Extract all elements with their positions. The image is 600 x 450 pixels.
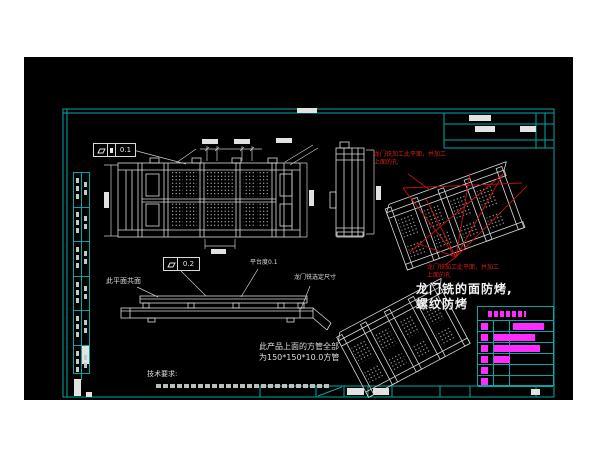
strip-cell — [74, 208, 82, 242]
magenta-marker — [481, 356, 488, 363]
process-table-row — [478, 321, 553, 332]
process-table-row — [478, 343, 553, 354]
vertical-text-blob — [76, 247, 79, 271]
strip-cell — [82, 242, 89, 276]
process-table-rows — [478, 321, 553, 387]
vertical-text-blob — [76, 316, 79, 340]
strip-cell — [82, 346, 89, 380]
strip-cell — [74, 173, 82, 207]
flatness-symbol-icon — [94, 144, 108, 156]
vertical-text-blob — [76, 178, 79, 202]
magenta-bar — [494, 356, 510, 363]
gantry-mill-dimension-note: 龙门铣选定尺寸 — [294, 274, 336, 281]
magenta-marker — [481, 345, 488, 352]
left-strip-row — [74, 310, 89, 345]
magenta-bar — [494, 345, 540, 352]
strip-cell — [82, 277, 89, 311]
magenta-marker — [481, 323, 488, 330]
left-strip-row — [74, 276, 89, 311]
tube-note-line: 此产品上面的方管全部 — [259, 342, 339, 353]
flatness-frame-top: 0.1 — [93, 143, 136, 157]
process-table-header-text-blob — [488, 311, 526, 317]
vertical-text-blob — [76, 212, 79, 236]
red-note-line: 上面的孔 — [427, 272, 499, 280]
tube-note-line: 为150*150*10.0方管 — [259, 353, 339, 364]
square-tube-note: 此产品上面的方管全部 为150*150*10.0方管 — [259, 342, 339, 363]
red-note-line: 龙门铣加工此平面，并加工 — [374, 151, 446, 159]
vertical-text-blob — [84, 355, 87, 371]
vertical-text-blob — [76, 351, 79, 375]
tech-requirements-body-blob — [156, 384, 331, 388]
left-strip-row — [74, 207, 89, 242]
magenta-marker — [481, 334, 488, 341]
magenta-marker — [481, 378, 488, 385]
magenta-marker — [481, 367, 488, 374]
platform-flatness-note: 平台度0.1 — [250, 259, 278, 266]
strip-cell — [82, 173, 89, 207]
flatness-value-top: 0.1 — [116, 144, 135, 156]
process-table-row — [478, 365, 553, 376]
strip-cell — [74, 242, 82, 276]
cad-application-viewport: 0.1 0.2 此平面共面 平台度0.1 龙门铣选定尺寸 龙门铣加工此平面，并加… — [0, 0, 600, 450]
vertical-text-blob — [84, 216, 87, 232]
red-machining-note-lower: 龙门铣加工此平面，并加工 上面的孔 — [427, 264, 499, 280]
vertical-text-blob — [84, 286, 87, 302]
process-table-header — [478, 307, 553, 321]
process-table-row — [478, 332, 553, 343]
flatness-symbol-icon — [164, 258, 178, 270]
process-table-row — [478, 354, 553, 365]
vertical-text-blob — [76, 282, 79, 306]
left-strip-row — [74, 172, 89, 207]
coplanar-note: 此平面共面 — [106, 277, 141, 285]
strip-cell — [74, 311, 82, 345]
strip-cell — [82, 311, 89, 345]
strip-cell — [82, 208, 89, 242]
red-note-line: 龙门铣加工此平面，并加工 — [427, 264, 499, 272]
vertical-text-blob — [84, 251, 87, 267]
strip-cell — [74, 277, 82, 311]
vertical-text-blob — [84, 182, 87, 198]
red-machining-note-upper: 龙门铣加工此平面，并加工 上面的孔 — [374, 151, 446, 167]
fcf-datum-blob — [108, 144, 116, 156]
flatness-frame-side: 0.2 — [163, 257, 200, 271]
flatness-value-side: 0.2 — [178, 258, 199, 270]
left-strip-row — [74, 241, 89, 276]
left-strip-table — [73, 172, 90, 374]
tech-requirements-title: 技术要求: — [147, 370, 177, 378]
finish-note-line: 龙门铣的面防烤, — [416, 282, 513, 297]
strip-cell — [74, 346, 82, 380]
left-strip-row — [74, 345, 89, 380]
magenta-bar — [513, 323, 544, 330]
vertical-text-blob — [84, 320, 87, 336]
process-table — [477, 306, 554, 386]
process-table-row — [478, 376, 553, 387]
red-note-line: 上面的孔 — [374, 159, 446, 167]
magenta-bar — [494, 334, 535, 341]
